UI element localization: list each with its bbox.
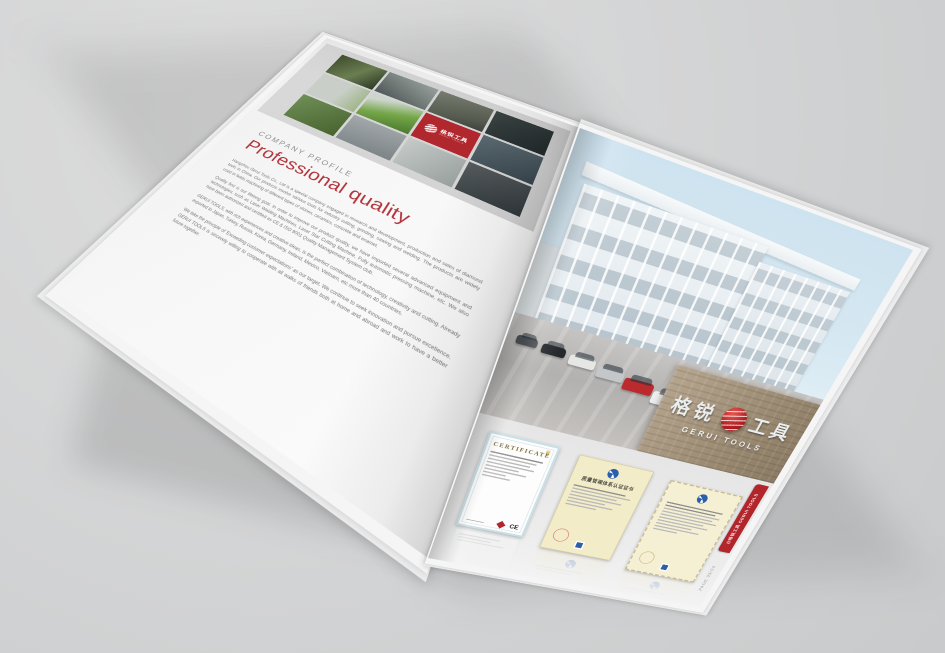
globe-logo-icon: [423, 123, 440, 135]
certification-emblem-icon: [695, 493, 709, 504]
wall-brand-cn-left: 格锐: [666, 390, 723, 427]
wall-brand-cn-right: 工具: [744, 411, 799, 446]
certification-emblem-icon: [605, 468, 620, 480]
gold-stamp-icon: [637, 550, 657, 565]
red-stamp-icon: [551, 527, 572, 543]
blue-seal-icon: [573, 541, 585, 550]
body-text: Hangzhou Gerui Tools Co., Ltd is a speci…: [165, 158, 483, 387]
blue-seal-icon: [659, 563, 671, 571]
